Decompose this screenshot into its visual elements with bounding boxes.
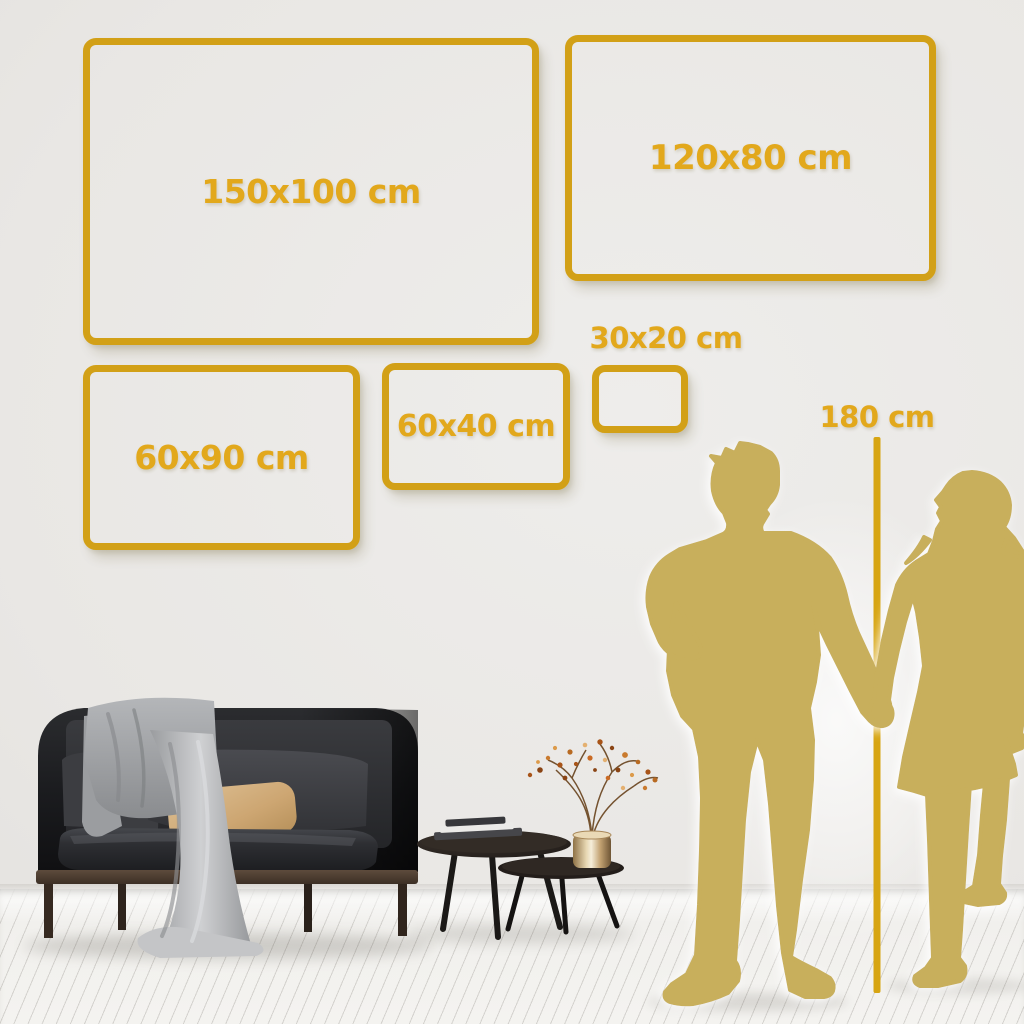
size-guide-scene: 150x100 cm 120x80 cm 60x90 cm 60x40 cm 3… — [0, 0, 1024, 1024]
man-silhouette — [647, 443, 892, 1004]
height-label-180: 180 cm — [813, 400, 941, 434]
height-reference-illustration — [0, 0, 1024, 1024]
